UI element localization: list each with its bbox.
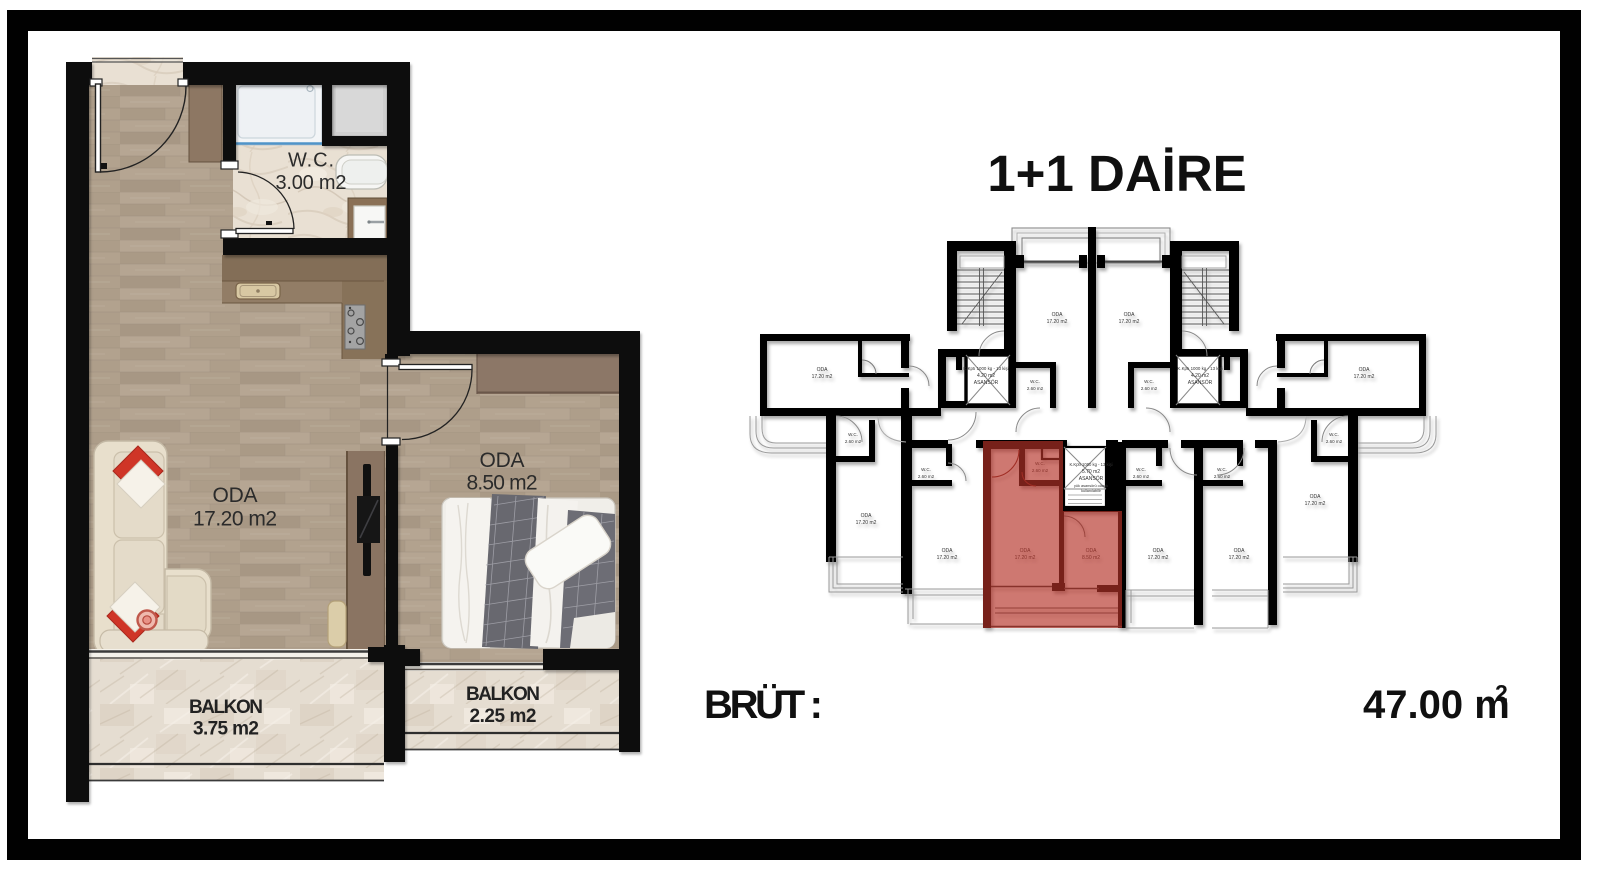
svg-text:17.20 m2: 17.20 m2 bbox=[856, 520, 877, 526]
svg-text:K.Kptı 1000 kg - 13 kişi: K.Kptı 1000 kg - 13 kişi bbox=[1069, 462, 1112, 467]
svg-text:17.20 m2: 17.20 m2 bbox=[1305, 501, 1326, 507]
svg-text:ASANSÖR: ASANSÖR bbox=[1079, 475, 1104, 482]
svg-text:ODA: ODA bbox=[480, 449, 525, 472]
svg-text:W.C.: W.C. bbox=[1136, 467, 1146, 472]
svg-text:2.60 m2: 2.60 m2 bbox=[1141, 386, 1158, 391]
svg-text:47.00 m: 47.00 m bbox=[1363, 683, 1510, 727]
svg-text:17.20 m2: 17.20 m2 bbox=[937, 555, 958, 561]
svg-text:W.C.: W.C. bbox=[288, 150, 334, 172]
svg-text:2.25 m2: 2.25 m2 bbox=[470, 706, 537, 727]
svg-text:2: 2 bbox=[1495, 680, 1508, 706]
svg-text:W.C.: W.C. bbox=[1329, 432, 1339, 437]
svg-text:2.60 m2: 2.60 m2 bbox=[1326, 439, 1343, 444]
svg-text:17.20 m2: 17.20 m2 bbox=[1354, 374, 1375, 380]
svg-text:BALKON: BALKON bbox=[189, 697, 263, 718]
svg-text:BALKON: BALKON bbox=[466, 684, 540, 705]
svg-text:W.C.: W.C. bbox=[1144, 379, 1154, 384]
svg-text:2.60 m2: 2.60 m2 bbox=[1133, 474, 1150, 479]
svg-text:17.20 m2: 17.20 m2 bbox=[1229, 555, 1250, 561]
svg-text:ODA: ODA bbox=[1234, 548, 1246, 554]
svg-text:ODA: ODA bbox=[817, 367, 829, 373]
svg-text:BRÜT :: BRÜT : bbox=[704, 682, 823, 727]
svg-text:ASANSÖR: ASANSÖR bbox=[974, 379, 999, 386]
svg-text:ODA: ODA bbox=[1359, 367, 1371, 373]
svg-text:2.60 m2: 2.60 m2 bbox=[918, 474, 935, 479]
svg-text:17.20 m2: 17.20 m2 bbox=[812, 374, 833, 380]
svg-text:4.20 m2: 4.20 m2 bbox=[1191, 373, 1209, 379]
svg-text:2.60 m2: 2.60 m2 bbox=[1027, 386, 1044, 391]
svg-text:5.70 m2: 5.70 m2 bbox=[1082, 469, 1100, 475]
svg-text:K.Kptı 1000 kg - 13 kişi: K.Kptı 1000 kg - 13 kişi bbox=[1177, 366, 1222, 371]
svg-text:4.20 m2: 4.20 m2 bbox=[977, 373, 995, 379]
svg-text:3.00 m2: 3.00 m2 bbox=[276, 172, 347, 194]
svg-text:ODA: ODA bbox=[1310, 494, 1322, 500]
svg-text:K.Kptı 1000 kg - 13 kişi: K.Kptı 1000 kg - 13 kişi bbox=[963, 366, 1008, 371]
svg-text:8.50 m2: 8.50 m2 bbox=[467, 472, 538, 495]
svg-text:17.20 m2: 17.20 m2 bbox=[193, 508, 277, 531]
svg-text:17.20 m2: 17.20 m2 bbox=[1047, 319, 1068, 325]
svg-text:ODA: ODA bbox=[861, 513, 873, 519]
svg-text:W.C.: W.C. bbox=[1217, 467, 1227, 472]
svg-text:ASANSÖR: ASANSÖR bbox=[1188, 379, 1213, 386]
svg-text:2.60 m2: 2.60 m2 bbox=[845, 439, 862, 444]
svg-text:W.C.: W.C. bbox=[1030, 379, 1040, 384]
svg-text:3.75 m2: 3.75 m2 bbox=[193, 719, 259, 740]
svg-text:ODA: ODA bbox=[1153, 548, 1165, 554]
svg-text:W.C.: W.C. bbox=[921, 467, 931, 472]
svg-text:ODA: ODA bbox=[213, 484, 258, 507]
svg-text:W.C.: W.C. bbox=[848, 432, 858, 437]
svg-text:yük asansörü olarak: yük asansörü olarak bbox=[1074, 484, 1108, 488]
svg-text:ODA: ODA bbox=[942, 548, 954, 554]
svg-text:ODA: ODA bbox=[1052, 312, 1064, 318]
svg-text:ODA: ODA bbox=[1124, 312, 1136, 318]
svg-text:17.20 m2: 17.20 m2 bbox=[1148, 555, 1169, 561]
svg-text:17.20 m2: 17.20 m2 bbox=[1119, 319, 1140, 325]
svg-text:1+1 DAİRE: 1+1 DAİRE bbox=[987, 145, 1246, 202]
svg-text:kullanılabilir: kullanılabilir bbox=[1081, 489, 1102, 493]
